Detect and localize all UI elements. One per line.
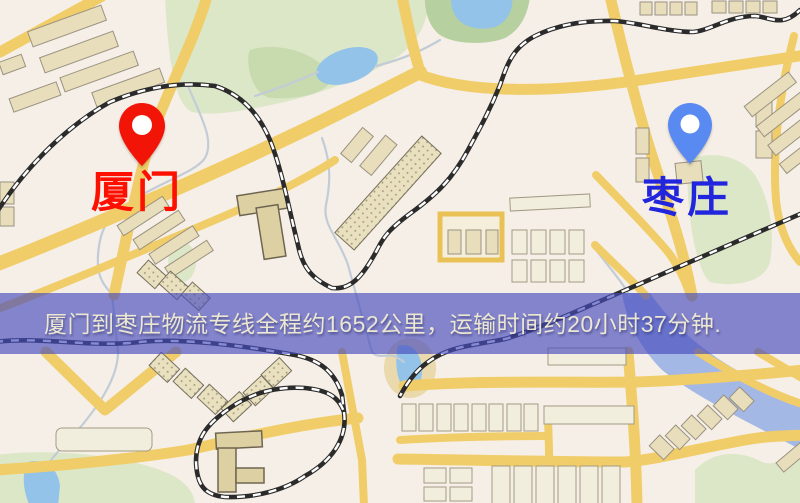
origin-city-label: 厦门 <box>91 170 183 217</box>
route-info-banner: 厦门到枣庄物流专线全程约1652公里，运输时间约20小时37分钟. <box>0 293 800 354</box>
destination-city-label: 枣庄 <box>642 175 732 221</box>
origin-pin-icon[interactable] <box>119 103 165 166</box>
logistics-route-map: 厦门 枣庄 厦门到枣庄物流专线全程约1652公里，运输时间约20小时37分钟. <box>0 0 800 503</box>
map-background <box>0 0 800 503</box>
destination-pin-icon[interactable] <box>668 103 712 164</box>
route-info-text: 厦门到枣庄物流专线全程约1652公里，运输时间约20小时37分钟. <box>44 305 721 339</box>
